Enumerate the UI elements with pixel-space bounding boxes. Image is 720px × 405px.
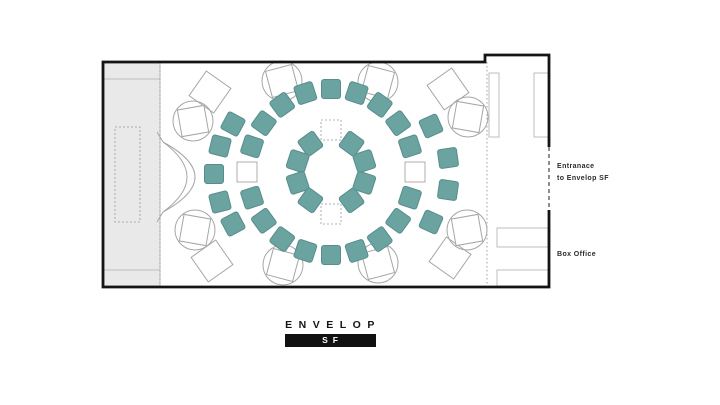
- speaker-icon-square: [179, 214, 210, 245]
- entrance-label: Entranace to Envelop SF: [557, 161, 609, 185]
- seat-placeholder: [321, 204, 341, 224]
- logo-sf-badge: SF: [285, 334, 376, 347]
- logo-wordmark: ENVELOP: [260, 319, 400, 331]
- seat: [398, 186, 422, 210]
- seat: [418, 113, 443, 138]
- lobby-counter: [534, 73, 549, 137]
- seat: [208, 190, 231, 213]
- lobby-counter: [489, 73, 499, 137]
- seat: [240, 186, 264, 210]
- seat-placeholder: [405, 162, 425, 182]
- seat: [437, 179, 458, 200]
- speaker-icon-square: [451, 214, 482, 245]
- stage-crescent: [163, 142, 187, 212]
- floor-plan-canvas: Entranace to Envelop SF Box Office ENVEL…: [0, 0, 720, 405]
- speaker-icon-square: [177, 105, 208, 136]
- lobby-counter: [497, 228, 548, 247]
- seat: [208, 134, 231, 157]
- entrance-label-line2: to Envelop SF: [557, 175, 609, 182]
- speaker-icon-square: [265, 64, 298, 97]
- stage-crescent: [163, 142, 195, 212]
- entrance-label-line1: Entranace: [557, 163, 594, 170]
- seat: [385, 110, 412, 137]
- box-office-label: Box Office: [557, 249, 596, 261]
- seat-placeholder: [237, 162, 257, 182]
- seat: [398, 134, 422, 158]
- envelop-logo: ENVELOP SF: [260, 319, 400, 347]
- seat: [220, 111, 246, 137]
- seat: [240, 134, 264, 158]
- seat: [385, 208, 412, 235]
- seat: [367, 226, 394, 253]
- seat: [269, 226, 296, 253]
- lobby-counter: [497, 270, 548, 286]
- seat: [251, 110, 278, 137]
- seat: [437, 147, 458, 168]
- seat: [205, 165, 224, 184]
- stage-area: [104, 63, 160, 286]
- speaker-icon-square: [452, 101, 483, 132]
- seat: [367, 92, 394, 119]
- seat-placeholder: [321, 120, 341, 140]
- seat: [220, 211, 246, 237]
- seat: [322, 80, 341, 99]
- seat: [418, 209, 443, 234]
- seat: [322, 246, 341, 265]
- corner-square: [191, 240, 233, 282]
- seat: [251, 208, 278, 235]
